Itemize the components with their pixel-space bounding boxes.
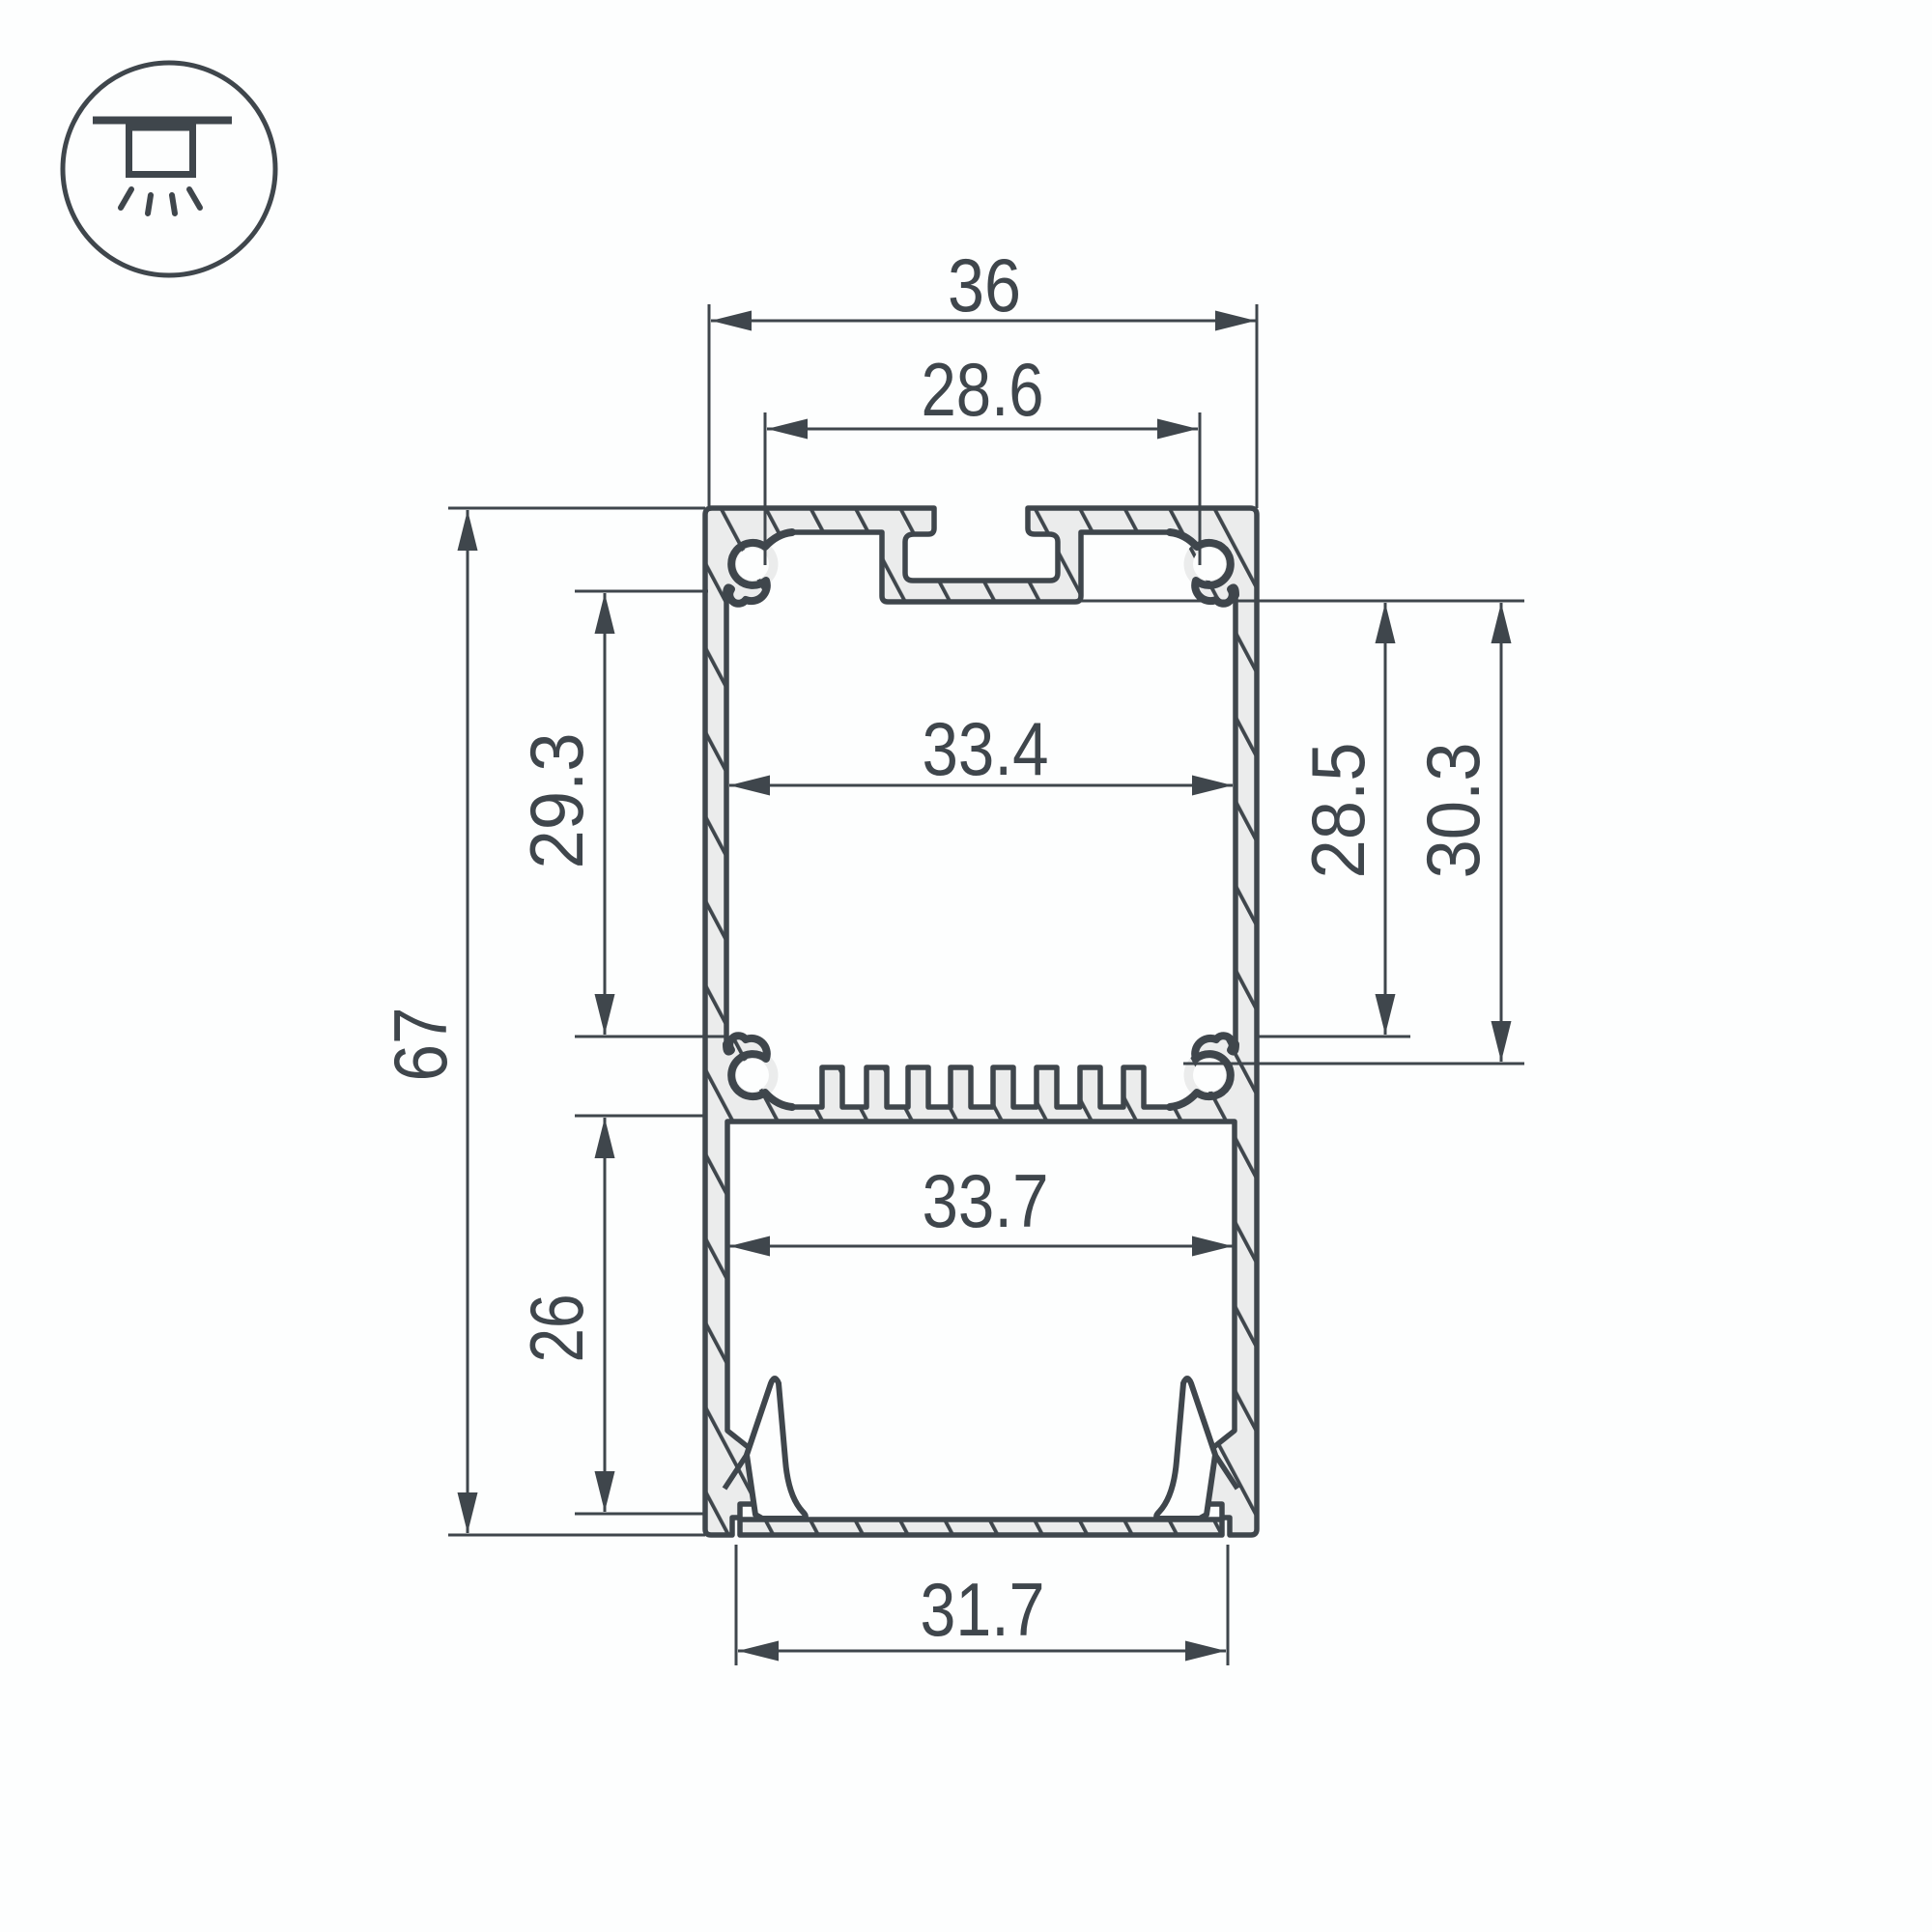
svg-text:33.4: 33.4 — [923, 706, 1049, 791]
svg-text:33.7: 33.7 — [923, 1158, 1049, 1243]
svg-text:30.3: 30.3 — [1410, 743, 1495, 879]
svg-text:28.6: 28.6 — [922, 347, 1044, 432]
svg-text:31.7: 31.7 — [921, 1567, 1045, 1652]
svg-text:28.5: 28.5 — [1295, 743, 1380, 879]
svg-text:26: 26 — [514, 1294, 599, 1363]
svg-text:29.3: 29.3 — [514, 733, 599, 869]
svg-text:67: 67 — [378, 1008, 463, 1082]
svg-text:36: 36 — [948, 242, 1021, 327]
